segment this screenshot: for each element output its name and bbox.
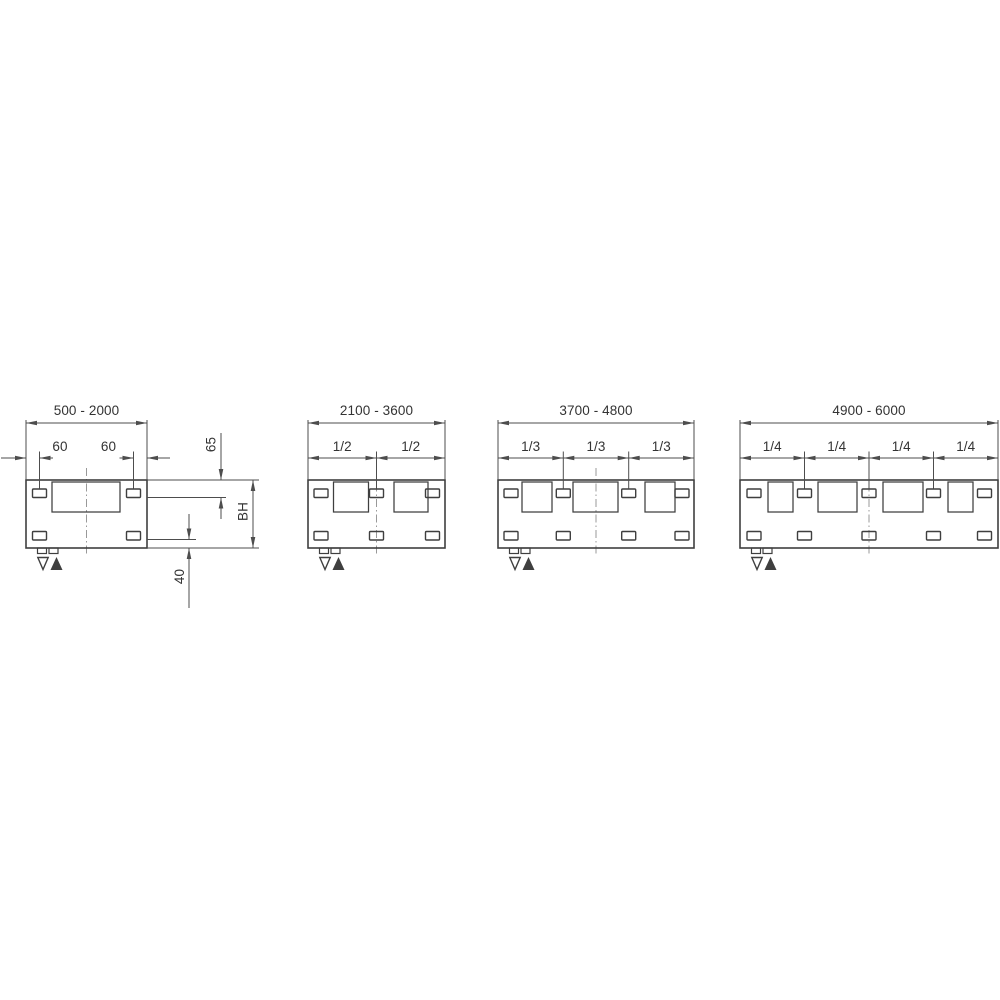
vertical-dim-label: 40	[172, 569, 187, 584]
offset-dim-label: 60	[52, 439, 67, 454]
fraction-dim-arrow	[934, 456, 945, 461]
overall-dim-arrow	[987, 421, 998, 426]
connection-tab	[320, 548, 329, 554]
fraction-dim-arrow	[858, 456, 869, 461]
mounting-slot-top	[314, 489, 328, 498]
mounting-slot-bottom	[314, 532, 328, 541]
mounting-slot-bottom	[622, 532, 636, 541]
vertical-dim-arrow	[251, 480, 256, 491]
mounting-slot-bottom	[33, 532, 47, 541]
inner-cutout	[645, 482, 675, 512]
mounting-slot-top	[798, 489, 812, 498]
vertical-dim-arrow	[187, 548, 192, 559]
mounting-slot-top	[747, 489, 761, 498]
fraction-label: 1/3	[521, 439, 540, 454]
mounting-slot-top	[927, 489, 941, 498]
panel-range-3700-4800: 3700 - 48001/31/31/3	[498, 403, 694, 570]
inner-cutout	[394, 482, 428, 512]
offset-dim-arrow	[123, 456, 134, 461]
panel-range-2100-3600: 2100 - 36001/21/2	[308, 403, 445, 570]
mounting-slot-bottom	[675, 532, 689, 541]
overall-dim-arrow	[136, 421, 147, 426]
connection-tab	[521, 548, 530, 554]
panel-range-4900-6000: 4900 - 60001/41/41/41/4	[740, 403, 998, 570]
fraction-dim-arrow	[618, 456, 629, 461]
flow-symbol-open-triangle	[320, 558, 330, 570]
range-label: 2100 - 3600	[340, 403, 413, 418]
fraction-dim-arrow	[869, 456, 880, 461]
fraction-dim-arrow	[377, 456, 388, 461]
overall-dim-arrow	[26, 421, 37, 426]
mounting-slot-bottom	[747, 532, 761, 541]
connection-tab	[38, 548, 47, 554]
overall-dim-arrow	[683, 421, 694, 426]
fraction-dim-arrow	[794, 456, 805, 461]
mounting-slot-bottom	[556, 532, 570, 541]
fraction-label: 1/4	[892, 439, 911, 454]
overall-dim-arrow	[434, 421, 445, 426]
fraction-dim-arrow	[740, 456, 751, 461]
mounting-slot-bottom	[978, 532, 992, 541]
fraction-dim-arrow	[552, 456, 563, 461]
inner-cutout	[522, 482, 552, 512]
offset-dim-arrow	[15, 456, 26, 461]
fraction-dim-arrow	[923, 456, 934, 461]
mounting-slot-top	[504, 489, 518, 498]
mounting-slot-top	[675, 489, 689, 498]
fraction-dim-arrow	[629, 456, 640, 461]
vertical-dim-arrow	[251, 537, 256, 548]
range-label: 500 - 2000	[54, 403, 120, 418]
inner-cutout	[818, 482, 857, 512]
overall-dim-arrow	[740, 421, 751, 426]
mounting-slot-bottom	[127, 532, 141, 541]
vertical-dim-label: 65	[204, 437, 219, 452]
vertical-dim-label: BH	[236, 502, 251, 521]
overall-dim-arrow	[498, 421, 509, 426]
overall-dim-arrow	[308, 421, 319, 426]
inner-cutout	[334, 482, 369, 512]
fraction-label: 1/4	[763, 439, 782, 454]
connection-tab	[752, 548, 761, 554]
mounting-slot-top	[127, 489, 141, 498]
technical-drawing-svg: 500 - 2000606065BH402100 - 36001/21/2370…	[0, 0, 1000, 1000]
flow-symbol-open-triangle	[510, 558, 520, 570]
fraction-dim-arrow	[434, 456, 445, 461]
range-label: 4900 - 6000	[832, 403, 905, 418]
mounting-slot-bottom	[504, 532, 518, 541]
vertical-dim-arrow	[219, 498, 224, 509]
fraction-dim-arrow	[805, 456, 816, 461]
offset-dim-arrow	[147, 456, 158, 461]
diagram-canvas: 500 - 2000606065BH402100 - 36001/21/2370…	[0, 0, 1000, 1000]
fraction-dim-arrow	[563, 456, 574, 461]
mounting-slot-bottom	[927, 532, 941, 541]
flow-symbol-open-triangle	[38, 558, 48, 570]
range-label: 3700 - 4800	[559, 403, 632, 418]
return-symbol-filled-triangle	[51, 557, 63, 570]
fraction-label: 1/2	[333, 439, 352, 454]
fraction-label: 1/4	[827, 439, 846, 454]
connection-tab	[763, 548, 772, 554]
return-symbol-filled-triangle	[333, 557, 345, 570]
inner-cutout	[883, 482, 923, 512]
vertical-dim-arrow	[187, 529, 192, 540]
mounting-slot-bottom	[426, 532, 440, 541]
return-symbol-filled-triangle	[523, 557, 535, 570]
connection-tab	[49, 548, 58, 554]
fraction-dim-arrow	[366, 456, 377, 461]
return-symbol-filled-triangle	[765, 557, 777, 570]
mounting-slot-top	[33, 489, 47, 498]
mounting-slot-top	[556, 489, 570, 498]
fraction-label: 1/3	[586, 439, 605, 454]
inner-cutout	[948, 482, 973, 512]
mounting-slot-top	[978, 489, 992, 498]
vertical-dim-arrow	[219, 469, 224, 480]
fraction-dim-arrow	[308, 456, 319, 461]
flow-symbol-open-triangle	[752, 558, 762, 570]
connection-tab	[510, 548, 519, 554]
fraction-label: 1/3	[652, 439, 671, 454]
fraction-dim-arrow	[987, 456, 998, 461]
connection-tab	[331, 548, 340, 554]
mounting-slot-bottom	[798, 532, 812, 541]
offset-dim-label: 60	[101, 439, 116, 454]
offset-dim-arrow	[40, 456, 51, 461]
fraction-dim-arrow	[683, 456, 694, 461]
mounting-slot-top	[622, 489, 636, 498]
inner-cutout	[768, 482, 793, 512]
fraction-label: 1/4	[956, 439, 975, 454]
fraction-label: 1/2	[401, 439, 420, 454]
panel-range-500-2000: 500 - 2000606065BH40	[1, 403, 259, 608]
fraction-dim-arrow	[498, 456, 509, 461]
